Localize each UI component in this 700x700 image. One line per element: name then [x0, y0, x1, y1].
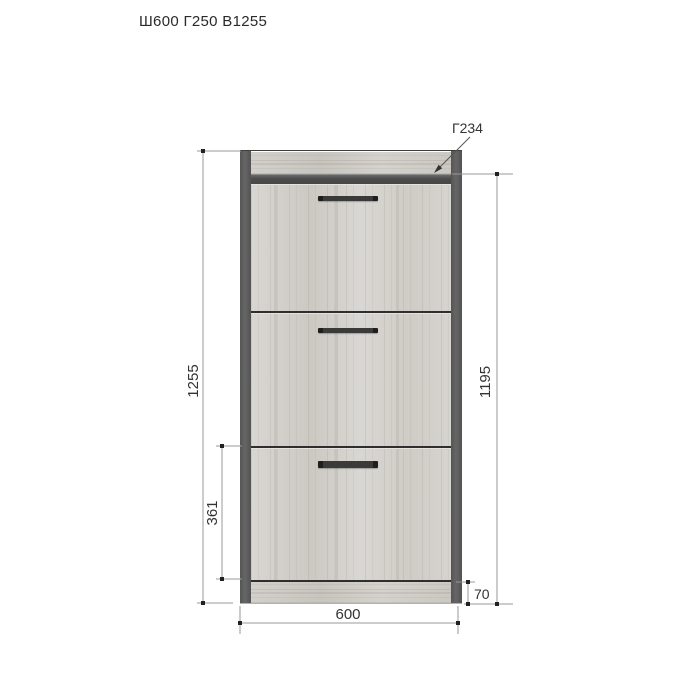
dimension-tick	[201, 601, 205, 605]
dim-width-label: 600	[335, 606, 360, 623]
dimension-tick	[466, 602, 470, 606]
dimension-tick	[495, 602, 499, 606]
dimension-tick	[456, 621, 460, 625]
dim-front-height-label: 1195	[477, 366, 494, 398]
dim-front-height: 1195	[452, 172, 513, 606]
dim-total-height: 1255	[185, 149, 241, 605]
dim-lower-section: 361	[204, 444, 242, 581]
drawing-canvas: Ш600 Г250 В1255	[0, 0, 700, 700]
dimension-overlay: 1255 1195 361 70	[0, 0, 700, 700]
dimension-tick	[220, 577, 224, 581]
callout-top-depth: Г234	[434, 120, 483, 173]
dim-plinth: 70	[456, 580, 490, 606]
dim-plinth-label: 70	[474, 586, 490, 602]
callout-top-depth-label: Г234	[452, 120, 483, 136]
dimension-tick	[495, 172, 499, 176]
dim-width: 600	[238, 606, 460, 634]
dimension-tick	[201, 149, 205, 153]
leader-line	[440, 137, 470, 167]
dimension-tick	[238, 621, 242, 625]
dim-total-height-label: 1255	[185, 364, 202, 397]
dimension-tick	[220, 444, 224, 448]
dim-lower-section-label: 361	[204, 500, 221, 525]
dimension-tick	[466, 580, 470, 584]
